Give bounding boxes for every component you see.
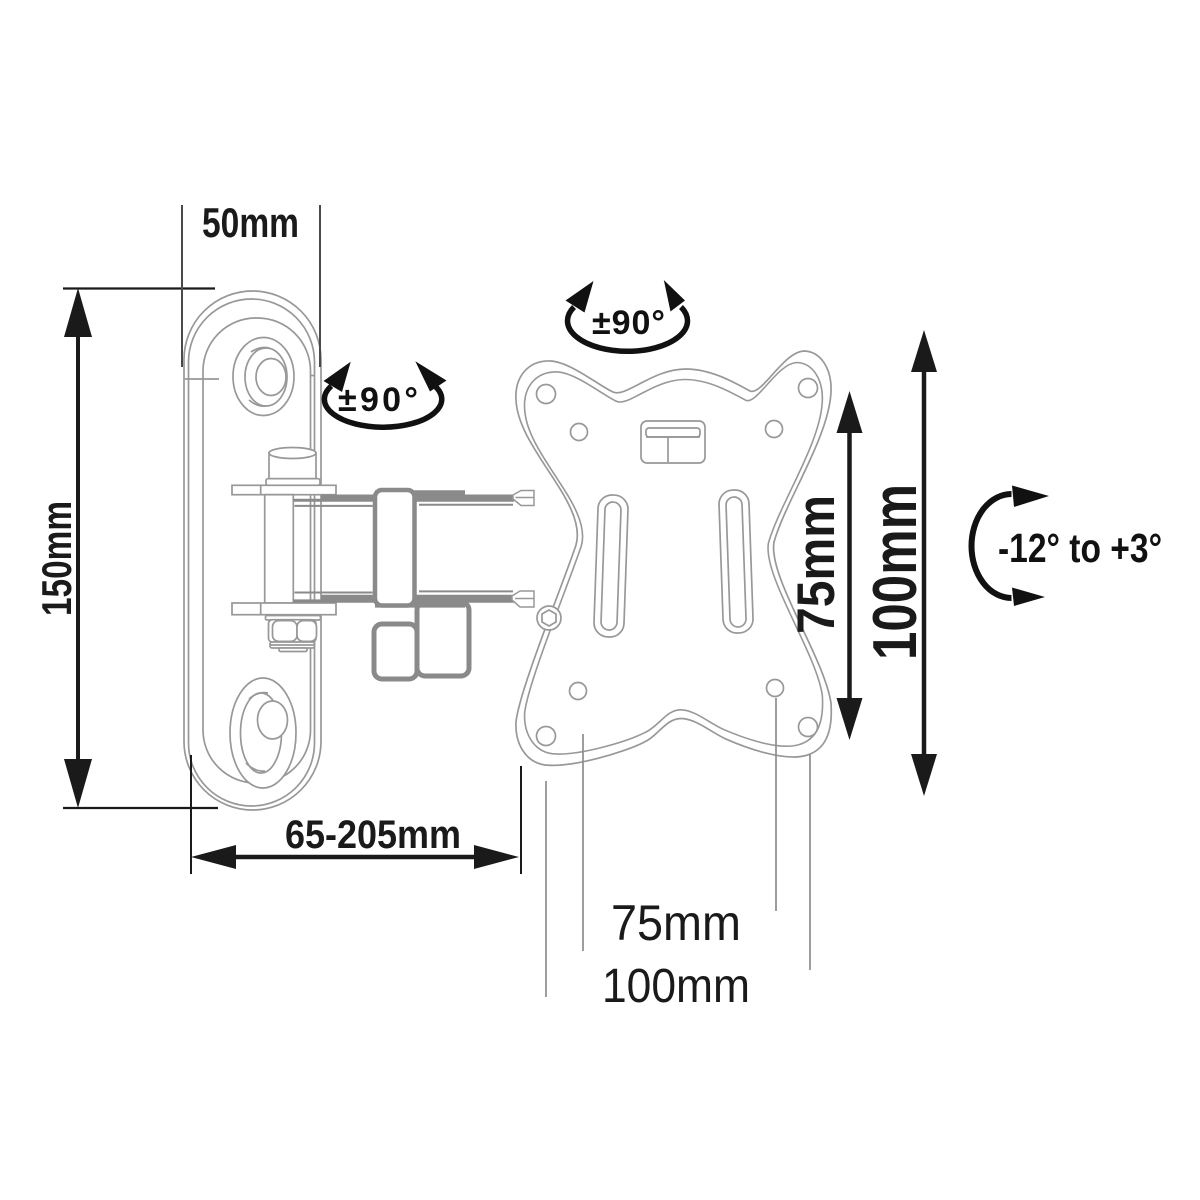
svg-text:150mm: 150mm — [33, 501, 80, 616]
svg-text:65-205mm: 65-205mm — [285, 813, 461, 857]
svg-text:50mm: 50mm — [202, 199, 299, 246]
svg-text:±90°: ±90° — [592, 304, 665, 342]
svg-text:-12° to +3°: -12° to +3° — [998, 525, 1162, 571]
svg-text:100mm: 100mm — [602, 960, 750, 1013]
svg-text:±90°: ±90° — [338, 381, 418, 419]
svg-text:100mm: 100mm — [861, 484, 930, 660]
svg-text:75mm: 75mm — [611, 895, 741, 951]
svg-text:75mm: 75mm — [787, 495, 846, 634]
